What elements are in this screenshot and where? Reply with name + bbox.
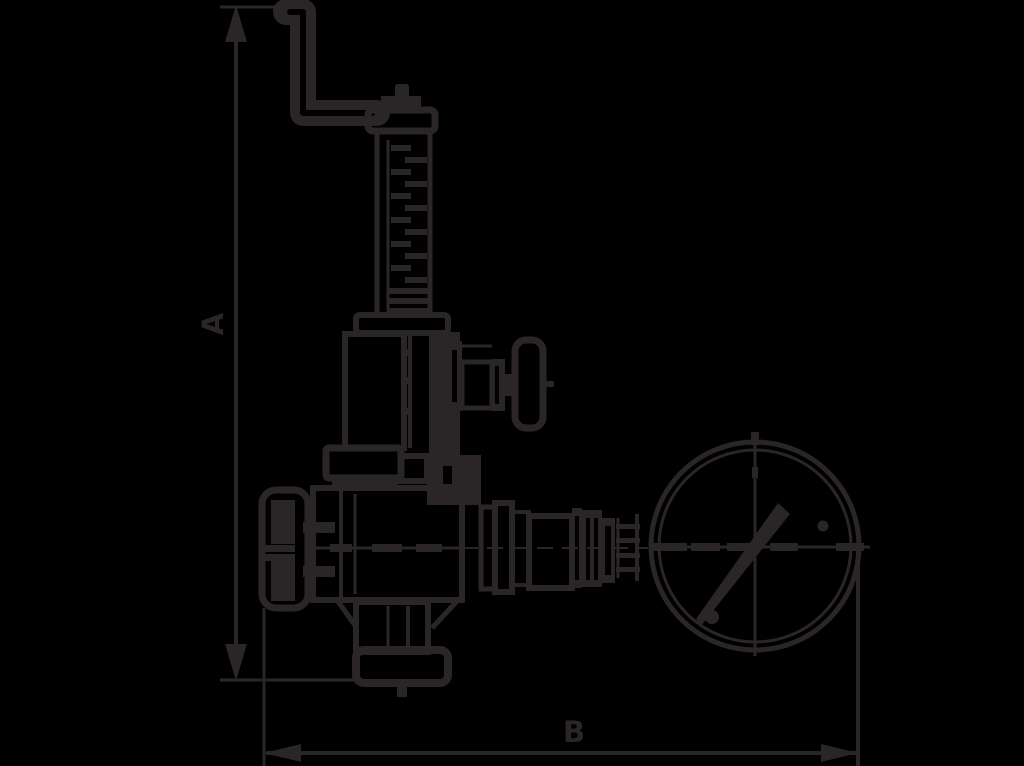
pipe-fittings <box>462 503 648 592</box>
lifting-lever <box>286 12 377 113</box>
bonnet-lower-flange <box>326 448 481 505</box>
outlet-neck <box>356 602 428 652</box>
wheel-hub-notch <box>265 554 295 561</box>
body-taper-right <box>432 600 458 628</box>
dim-b-label: B <box>563 715 585 749</box>
knob-plate-slit <box>495 366 499 404</box>
gauge-needle <box>696 503 790 626</box>
gauge-axis-dash <box>752 467 758 478</box>
outlet-flange <box>356 650 448 697</box>
bonnet-tick <box>402 377 412 384</box>
centerline-dash <box>372 544 402 552</box>
wheel-spoke-top <box>271 500 295 544</box>
dim-b-arrow-right <box>821 744 858 762</box>
bonnet-shell <box>345 334 404 448</box>
gauge-axis-dash <box>691 543 720 551</box>
lever-tube <box>286 12 377 113</box>
gauge-dot-lower-left <box>705 610 719 624</box>
spring-coils <box>391 145 427 283</box>
flange-center-tick <box>397 686 407 697</box>
lever-tube-bore <box>290 12 372 113</box>
gauge-axis-dash <box>751 432 759 445</box>
wheel-spoke-bottom <box>271 560 295 601</box>
centerline-dash <box>416 544 442 552</box>
bonnet-top-flange <box>356 315 448 333</box>
branch-pipe <box>462 362 492 408</box>
fitting-block-slit <box>605 526 611 575</box>
dim-a-arrow-down <box>225 644 247 681</box>
dim-a-arrow-up <box>225 5 247 42</box>
valve-body <box>313 488 462 652</box>
bonnet-tick <box>402 349 412 356</box>
gauge-axis-dash <box>653 543 687 551</box>
knob-handle <box>515 340 543 428</box>
adjuster-threads <box>388 288 431 314</box>
union-block <box>427 455 481 505</box>
bonnet <box>345 332 460 462</box>
test-knob <box>448 340 554 428</box>
dim-b-arrow-left <box>264 744 301 762</box>
lower-flange <box>326 448 401 478</box>
union-block-slit <box>443 466 452 484</box>
dim-a-label: A <box>196 312 230 335</box>
bonnet-tick <box>402 408 412 415</box>
lock-nut <box>401 456 427 481</box>
centerline-dash <box>330 544 352 552</box>
gauge-axis-dash <box>770 543 798 551</box>
pressure-gauge <box>649 432 870 656</box>
drawing-canvas: A <box>0 0 1024 766</box>
gauge-dot-right <box>818 521 829 532</box>
wheel-hub-notch <box>265 545 295 552</box>
knob-centerline-tick <box>545 381 554 387</box>
spring-housing <box>356 131 448 333</box>
branch-collar-bore <box>452 350 457 402</box>
valve-dimensional-drawing: A <box>0 0 1024 766</box>
fitting-hex-union <box>529 516 572 588</box>
